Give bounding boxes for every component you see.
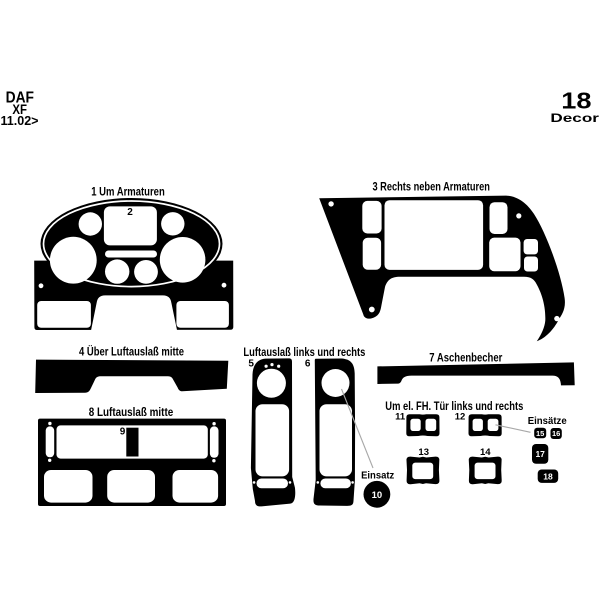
svg-text:10: 10 bbox=[372, 490, 383, 501]
svg-text:6: 6 bbox=[305, 358, 311, 369]
svg-text:13: 13 bbox=[418, 447, 429, 458]
svg-text:12: 12 bbox=[455, 412, 466, 423]
svg-text:15: 15 bbox=[536, 429, 544, 438]
svg-text:8 Luftauslaß mitte: 8 Luftauslaß mitte bbox=[89, 405, 174, 419]
svg-text:14: 14 bbox=[480, 447, 491, 458]
svg-text:17: 17 bbox=[535, 449, 545, 459]
svg-text:3 Rechts neben Armaturen: 3 Rechts neben Armaturen bbox=[372, 180, 490, 194]
svg-text:Luftauslaß links und rechts: Luftauslaß links und rechts bbox=[243, 345, 365, 359]
svg-text:4 Über Luftauslaß mitte: 4 Über Luftauslaß mitte bbox=[79, 343, 184, 358]
svg-text:11: 11 bbox=[395, 412, 406, 423]
svg-text:5: 5 bbox=[248, 358, 254, 369]
svg-text:16: 16 bbox=[552, 429, 560, 438]
svg-text:9: 9 bbox=[120, 427, 126, 438]
svg-text:Einsatz: Einsatz bbox=[361, 470, 394, 481]
svg-text:11.02>: 11.02> bbox=[1, 113, 39, 128]
svg-text:2: 2 bbox=[127, 207, 133, 218]
svg-text:Einsätze: Einsätze bbox=[528, 416, 567, 427]
svg-text:Decor: Decor bbox=[550, 111, 599, 125]
svg-text:7 Aschenbecher: 7 Aschenbecher bbox=[429, 350, 502, 364]
svg-text:18: 18 bbox=[543, 472, 553, 482]
svg-text:1 Um Armaturen: 1 Um Armaturen bbox=[91, 185, 165, 199]
svg-text:18: 18 bbox=[561, 87, 591, 113]
